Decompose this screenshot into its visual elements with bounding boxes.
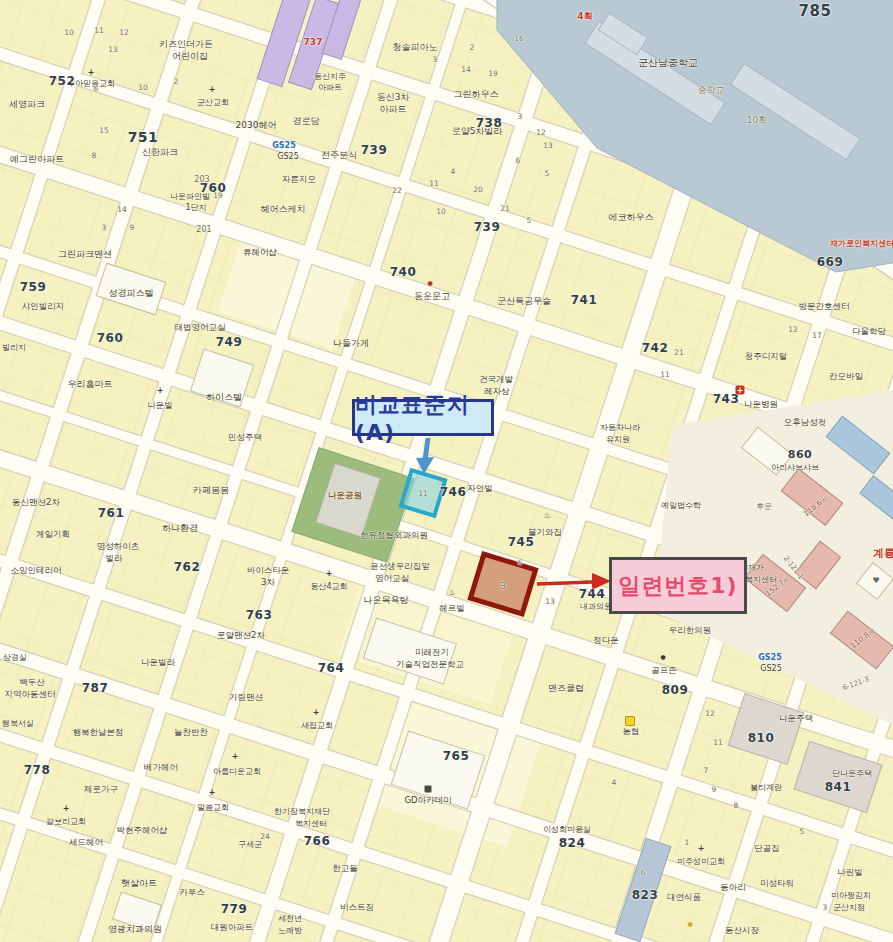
cadastral-map: 키즈인더가든어린이집수아믿음교회752세영파크예그린아파트751신한파크군산교회… (0, 0, 893, 942)
callout-comparison-label: 비교표준지(A) (355, 390, 491, 445)
callout-comparison-standard: 비교표준지(A) (352, 399, 494, 436)
callout-serial-label: 일련번호1) (618, 571, 737, 601)
map-canvas (0, 0, 893, 942)
callout-serial-number: 일련번호1) (609, 557, 747, 614)
highlight-parcel-blue (401, 470, 445, 516)
